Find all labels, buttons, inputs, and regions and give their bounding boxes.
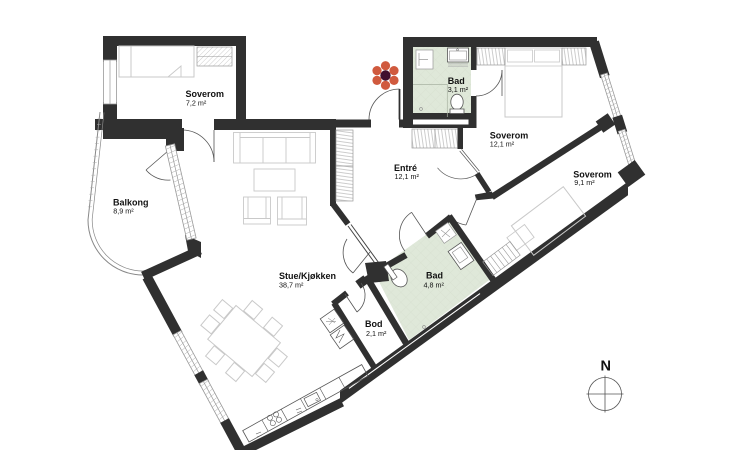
svg-text:8,9 m²: 8,9 m² xyxy=(113,207,134,216)
svg-text:4,8 m²: 4,8 m² xyxy=(424,281,445,290)
svg-text:Bod: Bod xyxy=(365,319,383,329)
svg-text:7,2 m²: 7,2 m² xyxy=(186,98,207,107)
svg-text:9,1 m²: 9,1 m² xyxy=(574,178,595,187)
svg-text:12,1 m²: 12,1 m² xyxy=(395,172,420,181)
svg-text:12,1 m²: 12,1 m² xyxy=(490,139,515,148)
svg-text:2,1 m²: 2,1 m² xyxy=(366,329,387,338)
svg-text:N: N xyxy=(601,359,611,375)
svg-text:Bad: Bad xyxy=(426,270,443,280)
svg-text:38,7 m²: 38,7 m² xyxy=(279,280,304,289)
svg-text:3,1 m²: 3,1 m² xyxy=(448,85,469,94)
